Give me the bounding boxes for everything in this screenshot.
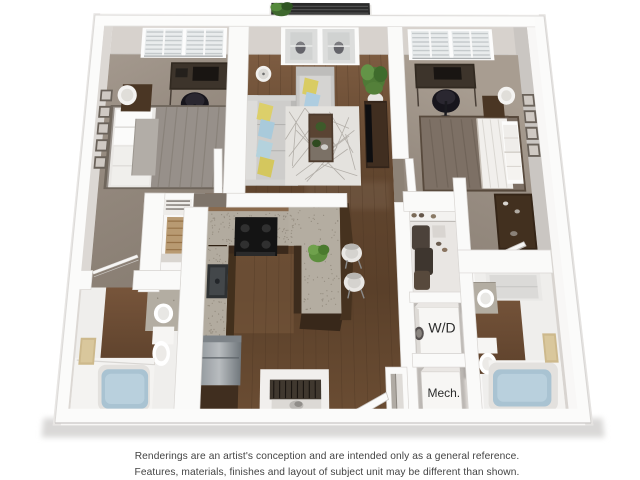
svg-text:W/D: W/D	[428, 319, 455, 335]
svg-text:Mech.: Mech.	[427, 386, 460, 400]
